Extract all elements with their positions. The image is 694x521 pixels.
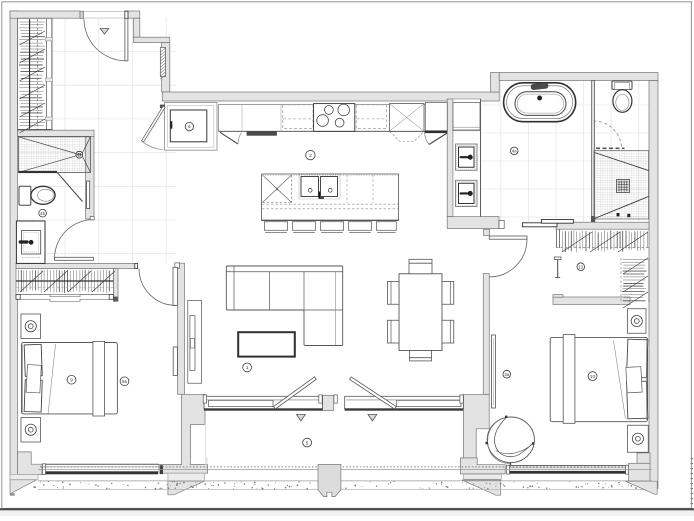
svg-text:3a: 3a — [504, 372, 509, 377]
svg-text:10: 10 — [590, 374, 596, 379]
svg-text:13: 13 — [578, 264, 583, 269]
svg-text:5: 5 — [306, 440, 309, 446]
svg-text:4a: 4a — [512, 148, 517, 153]
svg-text:9a: 9a — [122, 379, 127, 384]
svg-text:9: 9 — [70, 377, 73, 382]
svg-text:2: 2 — [309, 153, 312, 159]
svg-text:4b: 4b — [40, 211, 45, 216]
svg-text:1: 1 — [246, 365, 249, 371]
